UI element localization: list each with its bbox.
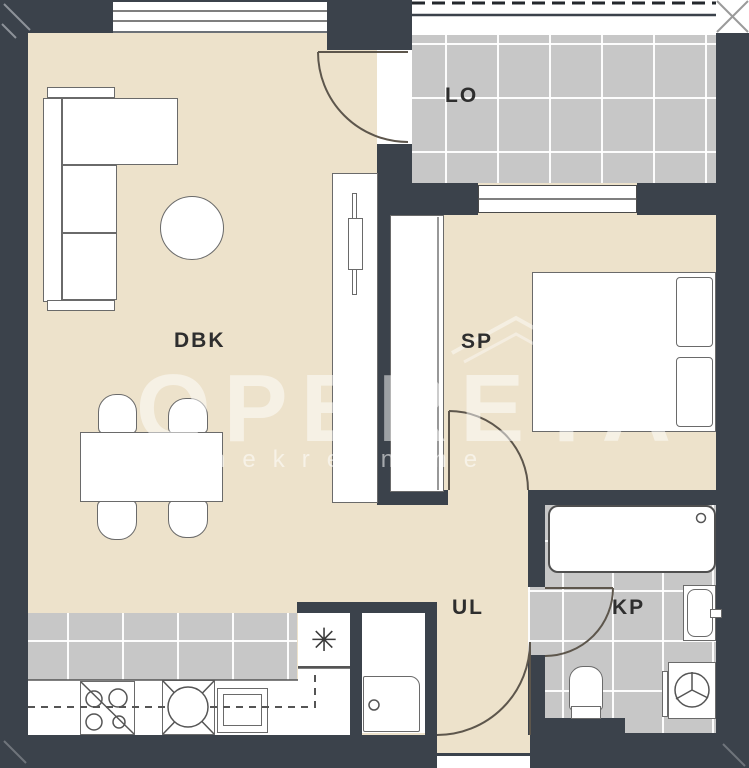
bathroom-door-opening	[528, 587, 545, 655]
sofa-seat-bottom	[62, 233, 117, 300]
wall-fridge-east	[425, 613, 437, 768]
sofa-armrest-top	[47, 87, 115, 98]
wall-loggia-south-right	[637, 183, 716, 215]
boiler-asterisk-icon: ✳	[298, 613, 350, 668]
sofa-seat-middle	[62, 165, 117, 233]
wardrobe-handle-icon	[348, 218, 363, 270]
wall-kitchen-divider	[350, 602, 362, 735]
wall-north-mid	[327, 0, 412, 50]
sofa-seat-top	[62, 98, 178, 165]
entrance-threshold-outer	[437, 756, 530, 768]
room-label-kp: KP	[612, 596, 645, 620]
corner-marker-box	[716, 0, 749, 33]
kitchen-tile-floor	[28, 613, 297, 680]
bathtub	[548, 505, 716, 573]
stove-icon	[80, 681, 135, 735]
entrance-threshold	[437, 735, 530, 753]
sofa-armrest-bottom	[47, 300, 115, 311]
wall-living-bedroom	[377, 215, 390, 490]
wardrobe-bedroom	[390, 215, 444, 492]
living-room-window	[113, 0, 327, 33]
kitchen-sink-icon	[162, 680, 215, 735]
bedroom-door-swing	[449, 411, 528, 490]
room-label-sp: SP	[461, 330, 493, 354]
washing-machine-panel	[662, 671, 668, 717]
fridge-icon	[363, 676, 420, 732]
loggia-window-sill	[412, 0, 716, 35]
dining-chair	[98, 394, 137, 434]
oven-inner	[223, 694, 262, 726]
dining-table	[80, 432, 223, 502]
dining-chair	[168, 398, 208, 434]
wall-bedroom-cap	[377, 490, 448, 505]
wall-west	[0, 0, 28, 768]
wall-kitchen-stub	[297, 602, 437, 613]
wall-north-left	[28, 0, 113, 33]
wall-east	[716, 0, 749, 768]
loggia-door-opening	[377, 50, 412, 144]
wall-loggia-south-left	[377, 183, 478, 215]
toilet-base	[571, 706, 601, 719]
wall-bathroom-west-upper	[528, 505, 545, 587]
room-label-ul: UL	[452, 596, 484, 620]
room-label-lo: LO	[445, 84, 478, 108]
floor-plan: ✳	[0, 0, 749, 768]
wall-south-left	[0, 735, 437, 768]
wall-loggia-west	[377, 144, 412, 183]
bedroom-window	[478, 185, 637, 213]
room-label-dbk: DBK	[174, 329, 226, 353]
bathroom-tap-icon	[710, 609, 722, 618]
loggia-tile-floor	[412, 35, 716, 183]
dining-chair	[168, 500, 208, 538]
toilet-icon	[569, 666, 603, 711]
sofa-back-left	[43, 98, 62, 302]
dining-chair	[97, 500, 137, 540]
washing-machine	[668, 662, 716, 719]
coffee-table	[160, 196, 224, 260]
pillow	[676, 357, 713, 427]
entrance-door-swing	[437, 642, 530, 735]
pillow	[676, 277, 713, 347]
